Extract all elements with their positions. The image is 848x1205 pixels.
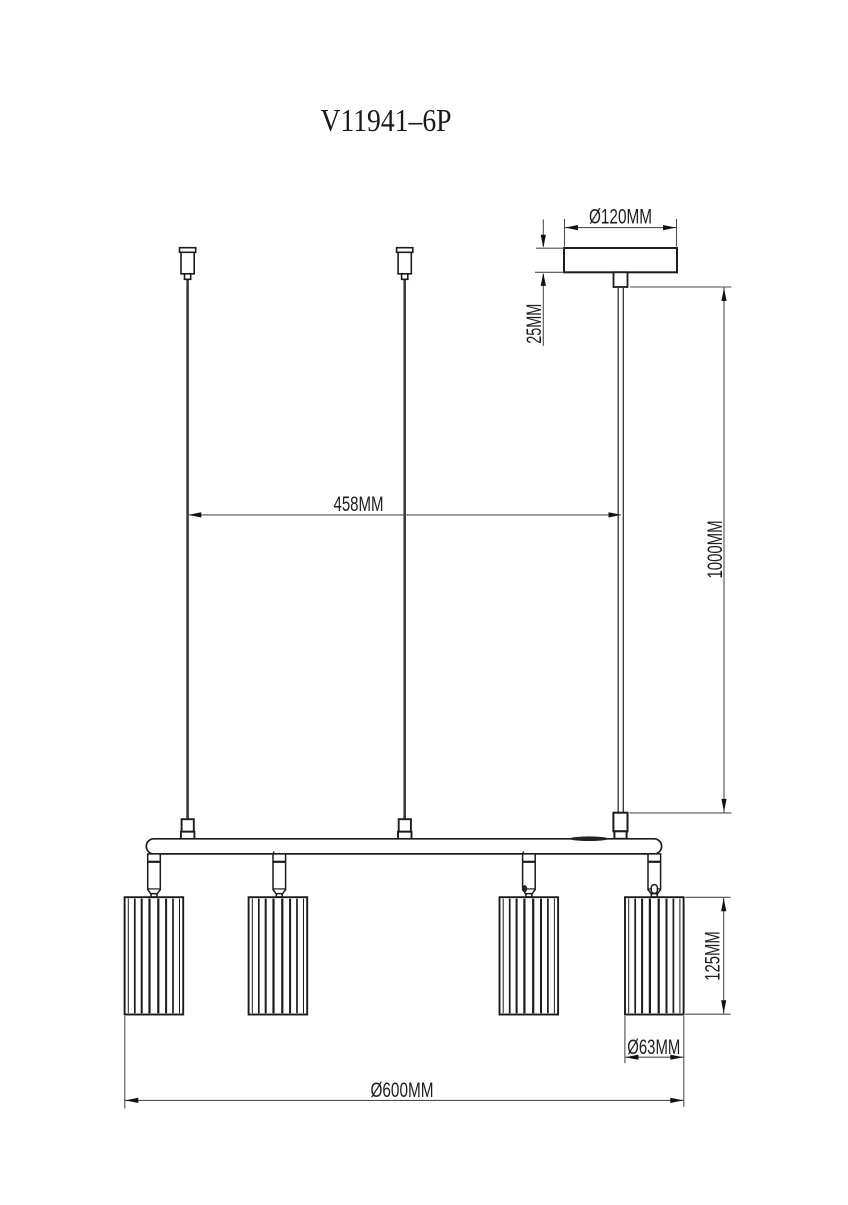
svg-text:V11941–6P: V11941–6P bbox=[321, 102, 452, 138]
svg-text:Ø600MM: Ø600MM bbox=[371, 1079, 434, 1102]
svg-text:Ø63MM: Ø63MM bbox=[627, 1036, 680, 1059]
svg-text:Ø120MM: Ø120MM bbox=[589, 205, 652, 228]
svg-text:25MM: 25MM bbox=[523, 304, 546, 344]
svg-text:1000MM: 1000MM bbox=[704, 521, 727, 579]
svg-text:125MM: 125MM bbox=[702, 931, 725, 981]
svg-text:458MM: 458MM bbox=[334, 493, 384, 516]
